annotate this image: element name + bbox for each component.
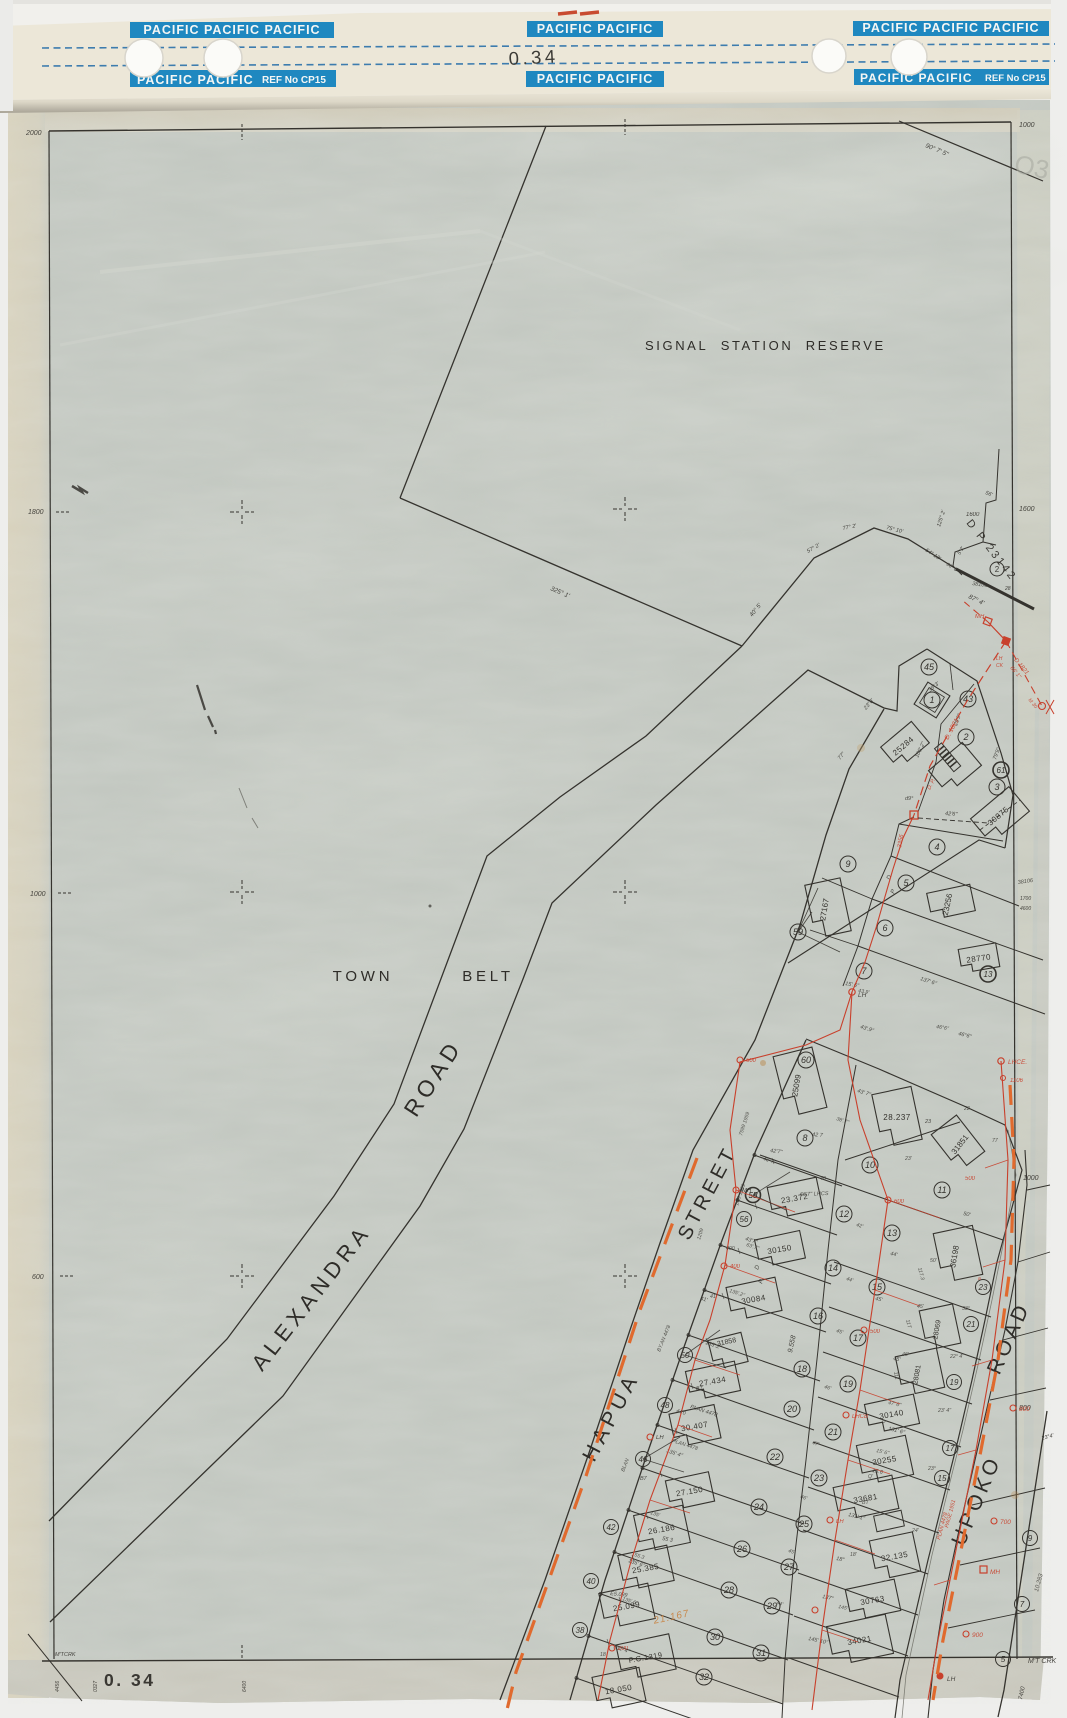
svg-text:22° 4': 22° 4' [949,1354,964,1360]
svg-text:24': 24' [911,1528,920,1534]
svg-text:6: 6 [882,923,887,933]
svg-text:600: 600 [746,1058,757,1064]
svg-text:SIGNAL STATION RESERVE: SIGNAL STATION RESERVE [645,338,886,353]
svg-text:1000: 1000 [1023,1175,1039,1182]
svg-text:M'T CRK: M'T CRK [1028,1658,1056,1665]
svg-text:6400: 6400 [242,1681,248,1692]
svg-text:900: 900 [972,1632,983,1639]
svg-text:M'TCRK: M'TCRK [55,1652,76,1658]
svg-text:19: 19 [843,1379,853,1389]
svg-text:REF No CP15: REF No CP15 [985,73,1046,84]
svg-text:2: 2 [995,565,1000,574]
svg-text:LHCE.: LHCE. [1008,1059,1027,1066]
svg-text:PACIFIC PACIFIC PACIFIC: PACIFIC PACIFIC PACIFIC [143,23,320,37]
svg-text:4456: 4456 [55,1681,61,1692]
svg-text:26: 26 [736,1544,747,1554]
svg-text:BT: BT [696,1386,703,1392]
svg-text:1600: 1600 [1019,506,1035,513]
svg-text:15: 15 [938,1474,947,1483]
svg-text:13: 13 [984,970,993,979]
svg-text:P: P [882,1420,886,1426]
svg-text:23: 23 [924,1119,932,1125]
svg-text:27: 27 [783,1562,795,1572]
svg-text:5: 5 [1001,1655,1006,1664]
svg-text:0327: 0327 [93,1681,99,1692]
svg-text:42 7: 42 7 [812,1132,824,1139]
svg-text:1000: 1000 [30,891,46,898]
svg-text:11: 11 [937,1185,946,1195]
svg-text:MH: MH [990,1569,1000,1576]
svg-text:2000: 2000 [25,130,42,137]
svg-text:800: 800 [1019,1406,1030,1413]
svg-text:10: 10 [865,1160,875,1170]
svg-text:23' 4'': 23' 4'' [937,1408,952,1414]
svg-text:29: 29 [766,1601,777,1611]
svg-text:d9°: d9° [905,796,914,802]
svg-text:REF No CP15: REF No CP15 [262,75,326,86]
svg-text:4: 4 [934,842,939,852]
svg-text:1800: 1800 [28,509,44,516]
svg-text:66'7'' LHCS: 66'7'' LHCS [800,1191,829,1198]
svg-text:25: 25 [798,1519,810,1529]
svg-text:1000: 1000 [1019,122,1035,129]
svg-text:59: 59 [793,927,803,937]
svg-text:17: 17 [946,1444,955,1453]
svg-text:400: 400 [726,1246,735,1252]
svg-text:24: 24 [753,1502,764,1512]
svg-text:43: 43 [963,694,973,704]
svg-text:23': 23' [904,1156,913,1162]
svg-text:200: 200 [617,1646,629,1652]
svg-text:28: 28 [1004,586,1011,592]
svg-text:56: 56 [740,1215,749,1224]
svg-text:500: 500 [965,1176,976,1182]
svg-text:8: 8 [802,1133,807,1143]
svg-text:600: 600 [32,1274,44,1281]
svg-text:PACIFIC PACIFIC: PACIFIC PACIFIC [137,73,254,87]
svg-text:17: 17 [853,1333,864,1343]
svg-text:18: 18 [797,1364,807,1374]
svg-text:1106: 1106 [1010,1078,1024,1084]
svg-text:18': 18' [850,1552,858,1558]
svg-text:61: 61 [997,766,1006,775]
svg-text:14: 14 [828,1263,838,1273]
svg-text:9: 9 [1028,1534,1033,1543]
svg-text:45: 45 [924,662,935,672]
svg-text:0.34: 0.34 [508,45,559,69]
svg-text:22: 22 [769,1452,780,1462]
svg-text:19: 19 [950,1378,959,1387]
svg-text:42'6'': 42'6'' [945,811,959,818]
svg-text:30: 30 [710,1632,720,1642]
svg-text:CK: CK [996,663,1004,669]
svg-text:700: 700 [1000,1519,1011,1526]
svg-text:41': 41' [710,1294,718,1300]
svg-text:40: 40 [587,1577,596,1586]
svg-text:1700: 1700 [1020,896,1031,902]
svg-text:LH: LH [836,1519,844,1525]
svg-text:PACIFIC PACIFIC PACIFIC: PACIFIC PACIFIC PACIFIC [862,21,1039,35]
svg-text:20: 20 [786,1404,797,1414]
svg-text:9: 9 [845,859,850,869]
svg-text:4600: 4600 [1020,906,1031,912]
svg-text:50': 50' [930,1258,938,1264]
svg-text:LH: LH [947,1676,956,1683]
svg-text:PACIFIC PACIFIC: PACIFIC PACIFIC [537,72,654,86]
svg-text:31: 31 [756,1648,766,1658]
svg-text:28.237: 28.237 [883,1113,911,1122]
svg-text:22: 22 [963,1106,970,1112]
svg-text:16: 16 [813,1311,823,1321]
svg-text:33°: 33° [962,1306,970,1312]
svg-text:21: 21 [827,1427,838,1437]
svg-text:48: 48 [661,1401,670,1410]
svg-text:42: 42 [607,1523,616,1532]
svg-text:2: 2 [962,732,968,742]
svg-text:TOWN: TOWN [333,968,394,985]
svg-text:46': 46' [902,1352,910,1358]
svg-text:13: 13 [887,1228,897,1238]
svg-text:38: 38 [576,1626,585,1635]
svg-text:BELT: BELT [462,968,514,985]
svg-text:LH: LH [996,656,1003,662]
svg-text:LHCB: LHCB [852,1414,868,1420]
svg-text:18: 18 [600,1652,606,1658]
svg-text:32: 32 [699,1672,709,1682]
svg-text:7: 7 [1020,1600,1025,1609]
svg-text:12: 12 [839,1209,849,1219]
svg-text:B7: B7 [640,1476,648,1482]
svg-text:LH: LH [656,1435,664,1441]
svg-text:23: 23 [813,1473,824,1483]
svg-text:60: 60 [801,1055,811,1065]
svg-text:28: 28 [723,1585,734,1595]
svg-text:BT: BT [862,1500,869,1506]
svg-text:23°: 23° [927,1466,936,1472]
svg-text:0. 34: 0. 34 [104,1670,155,1690]
svg-text:500: 500 [870,1329,881,1335]
svg-text:23: 23 [978,1283,988,1292]
svg-text:40: 40 [820,1176,826,1182]
svg-text:a: a [978,1276,981,1282]
svg-text:1600: 1600 [966,512,980,518]
svg-text:MH: MH [975,614,985,620]
svg-text:1: 1 [929,695,934,705]
svg-text:PACIFIC PACIFIC: PACIFIC PACIFIC [537,22,654,36]
svg-text:3: 3 [994,782,999,792]
svg-text:45': 45' [917,1304,925,1310]
svg-text:21: 21 [966,1320,976,1329]
